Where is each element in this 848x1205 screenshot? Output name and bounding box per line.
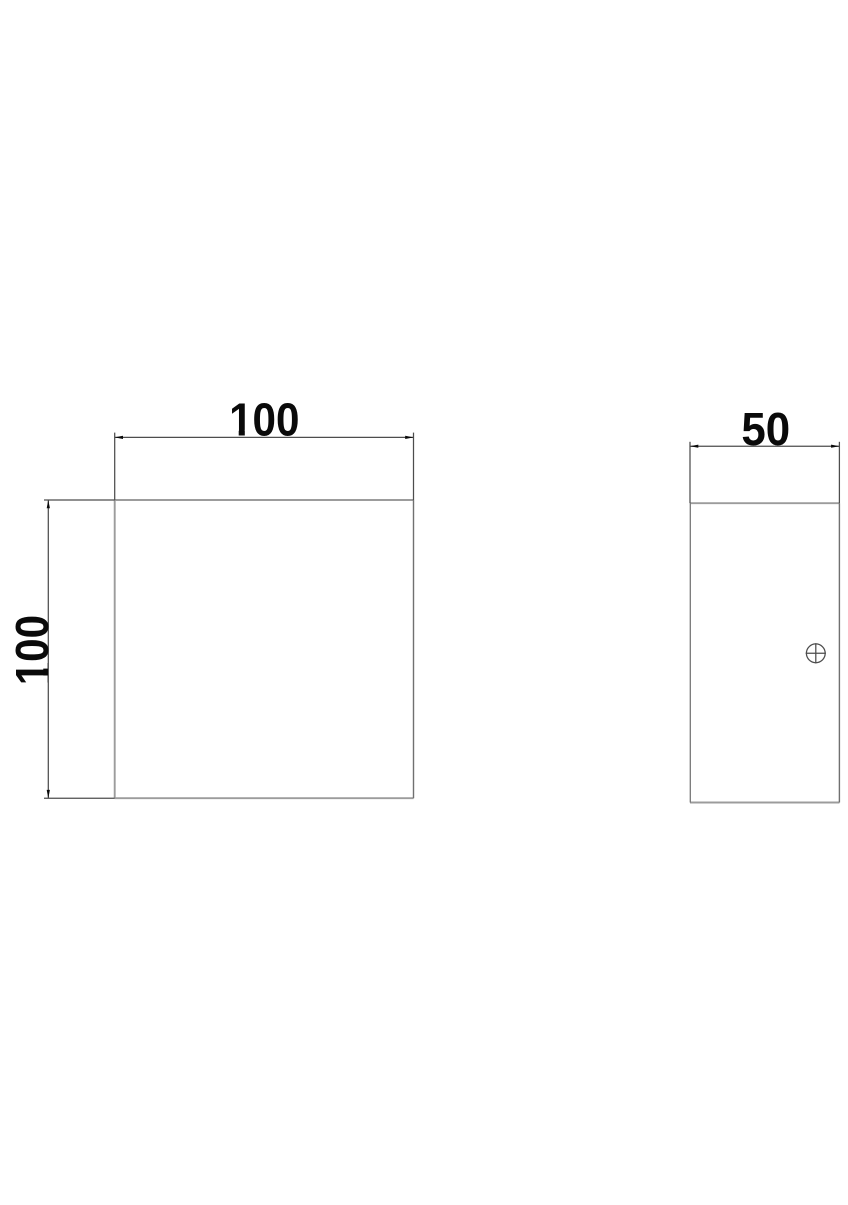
svg-text:100: 100 (6, 615, 58, 685)
svg-text:100: 100 (229, 394, 299, 446)
svg-text:50: 50 (741, 403, 790, 455)
